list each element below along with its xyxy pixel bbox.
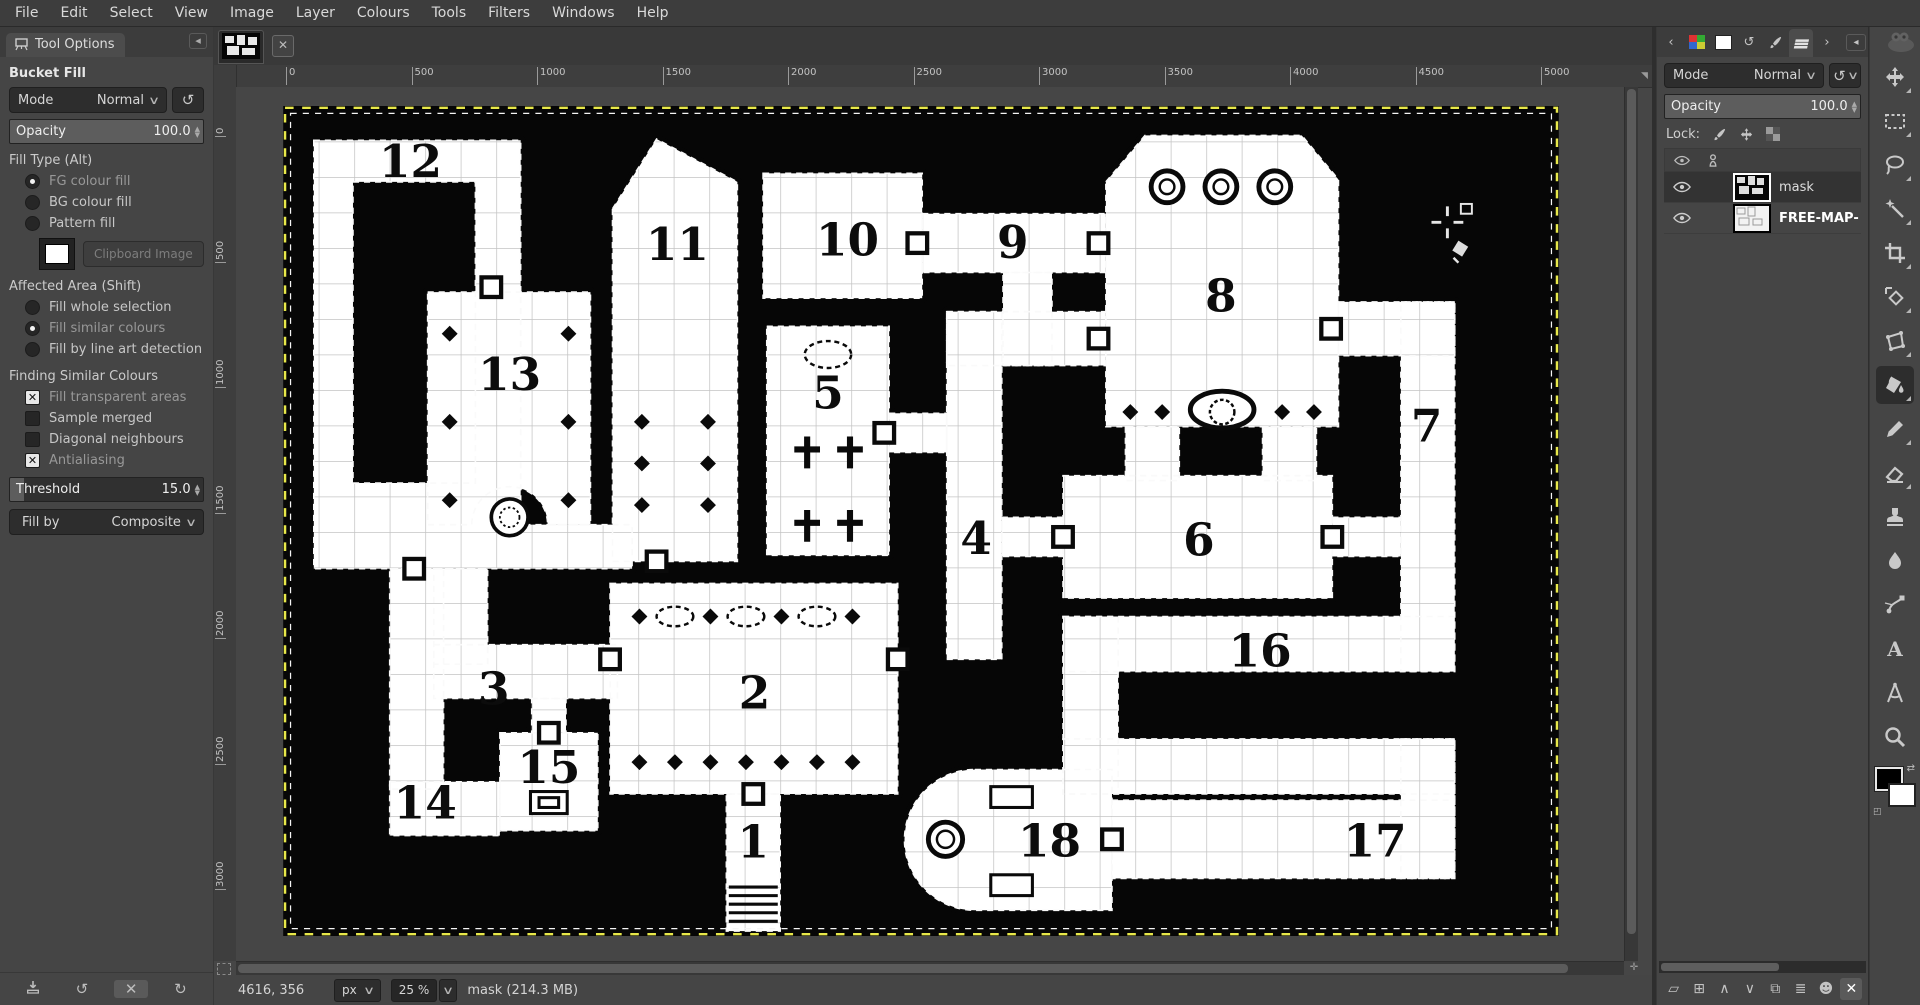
fg-colour-swatch[interactable] [39, 238, 75, 270]
menu-select[interactable]: Select [99, 1, 164, 25]
affected-area-label: Affected Area (Shift) [9, 279, 204, 294]
room-number-17: 17 [1344, 813, 1407, 867]
option-label: Diagonal neighbours [49, 432, 184, 447]
tab-tool-options[interactable]: Tool Options [6, 33, 125, 57]
menu-file[interactable]: File [4, 1, 49, 25]
checkbox-sample-merged[interactable]: Sample merged [9, 408, 204, 429]
option-label: BG colour fill [49, 195, 132, 210]
chevron-down-icon: ∨ [363, 984, 375, 997]
lock-paint-icon[interactable] [1712, 127, 1727, 142]
tab-configure-icon[interactable]: ◂ [189, 33, 207, 49]
room-number-13: 13 [478, 347, 541, 401]
layer-action-buttons: ▱⊞∧∨⧉≣☻✕ [1657, 973, 1868, 1005]
layer-mode-label: Mode [1673, 68, 1708, 83]
room-number-10: 10 [816, 212, 879, 266]
duplicate-layer-button[interactable]: ⧉ [1764, 978, 1786, 1000]
ruler-tick: 2000 [788, 67, 816, 85]
new-group-button[interactable]: ⊞ [1688, 978, 1710, 1000]
back-arrow-icon[interactable]: ‹ [1659, 30, 1683, 54]
menubar: FileEditSelectViewImageLayerColoursTools… [0, 0, 1920, 27]
visibility-column-icon [1674, 155, 1690, 166]
option-label: Antialiasing [49, 453, 125, 468]
layers-scrollbar[interactable] [1659, 961, 1866, 973]
option-label: Fill transparent areas [49, 390, 186, 405]
layers-panel-body: Mode Normal ∨ ↺ ∨ Opacity 100.0 ▲▼ Lock:… [1657, 57, 1868, 234]
option-label: Sample merged [49, 411, 152, 426]
chevron-down-icon: ∨ [185, 516, 197, 529]
lock-alpha-icon[interactable] [1766, 127, 1781, 142]
ruler-tick: 2500 [914, 67, 942, 85]
ruler-tick: 3500 [1165, 67, 1193, 85]
room-number-1: 1 [738, 815, 770, 869]
fuzzy-select-tool[interactable] [1876, 190, 1914, 228]
room-number-15: 15 [517, 740, 580, 794]
opacity-slider[interactable]: Opacity 100.0 ▲▼ [9, 119, 204, 144]
visibility-eye-icon[interactable] [1673, 181, 1691, 193]
pointer-position: 4616, 356 [238, 983, 324, 998]
ruler-corner [214, 65, 237, 87]
new-layer-button[interactable]: ▱ [1663, 978, 1685, 1000]
lock-position-icon[interactable] [1739, 127, 1754, 142]
ruler-tick: 5000 [1541, 67, 1569, 85]
radio-indicator[interactable] [25, 321, 40, 336]
mode-label: Mode [18, 93, 53, 108]
ruler-tick: 0 [286, 67, 295, 85]
unit-select[interactable]: px ∨ [334, 979, 381, 1002]
mode-reset-button[interactable]: ↺ [172, 87, 204, 113]
top-ruler[interactable]: 0500100015002000250030003500400045005000 [214, 65, 1652, 88]
room-number-16: 16 [1229, 624, 1292, 678]
tab-tool-options-label: Tool Options [35, 37, 115, 52]
smudge-icon [1883, 549, 1907, 573]
tool-options-body: Bucket Fill Mode Normal ∨ ↺ Opacity 100.… [0, 57, 213, 972]
threshold-value: 15.0 [162, 482, 195, 497]
chevron-down-icon: ∨ [442, 984, 454, 997]
handle-transform-tool[interactable] [1876, 322, 1914, 360]
radio-indicator[interactable] [25, 174, 40, 189]
layers-dock-tabstrip: ‹ ↺ › ◂ [1657, 27, 1868, 57]
fuzzy-select-icon [1883, 197, 1907, 221]
lock-label: Lock: [1666, 127, 1700, 142]
option-label: Pattern fill [49, 216, 115, 231]
link-column-icon [1708, 154, 1718, 167]
layers-icon[interactable] [1789, 29, 1813, 57]
save-icon [25, 979, 41, 995]
left-ruler[interactable]: 050010001500200025003000 [214, 87, 237, 961]
checkbox-antialiasing[interactable]: ✕Antialiasing [9, 450, 204, 471]
layer-thumbnail[interactable] [1733, 173, 1771, 202]
move-icon [1883, 65, 1907, 89]
option-label: Fill whole selection [49, 300, 172, 315]
move-tool[interactable] [1876, 58, 1914, 96]
menu-help[interactable]: Help [626, 1, 680, 25]
zoom-select[interactable]: ∨ [439, 979, 457, 1002]
layer-opacity-spinner[interactable]: ▲▼ [1852, 101, 1860, 113]
checkbox-fill-transparent-areas[interactable]: ✕Fill transparent areas [9, 387, 204, 408]
room-number-6: 6 [1183, 512, 1215, 566]
zoom-tool[interactable] [1876, 718, 1914, 756]
fill-type-label: Fill Type (Alt) [9, 153, 204, 168]
radio-indicator[interactable] [25, 195, 40, 210]
menu-layer[interactable]: Layer [285, 1, 346, 25]
fill-by-select[interactable]: Fill by Composite ∨ [9, 509, 204, 535]
close-image-icon[interactable]: ✕ [272, 35, 294, 57]
text-icon: A [1883, 637, 1907, 661]
quick-mask-toggle[interactable] [217, 963, 231, 975]
check-indicator[interactable] [25, 432, 40, 447]
fill-type-options: FG colour fillBG colour fillPattern fill [9, 171, 204, 234]
crop-icon [1883, 241, 1907, 265]
clone-icon [1883, 505, 1907, 529]
canvas-area: ✕ 05001000150020002500300035004000450050… [214, 27, 1652, 1005]
option-label: Fill similar colours [49, 321, 165, 336]
menu-windows[interactable]: Windows [541, 1, 626, 25]
free-select-tool[interactable] [1876, 146, 1914, 184]
tool-options-footer: ↺ ✕ ↻ [0, 972, 213, 1005]
fill-by-label: Fill by [18, 515, 59, 530]
checkbox-diagonal-neighbours[interactable]: Diagonal neighbours [9, 429, 204, 450]
image-tab-thumbnail[interactable] [218, 30, 264, 64]
ruler-tick: 1500 [215, 485, 226, 513]
vertical-scrollbar[interactable] [1624, 87, 1638, 961]
bg-swatch-icon[interactable] [1711, 30, 1735, 54]
room-number-3: 3 [478, 662, 510, 716]
layer-name[interactable]: FREE-MAP- [1779, 211, 1859, 226]
default-colours-icon[interactable]: ◰ [1873, 807, 1882, 817]
text-tool[interactable]: A [1876, 630, 1914, 668]
room-number-11: 11 [646, 217, 709, 271]
room-number-5: 5 [812, 365, 844, 419]
room-number-4: 4 [960, 511, 992, 565]
delete-layer-button[interactable]: ✕ [1840, 978, 1862, 1000]
menu-filters[interactable]: Filters [477, 1, 541, 25]
radio-fg-colour-fill[interactable]: FG colour fill [9, 171, 204, 192]
layer-row-free-map-[interactable]: FREE-MAP- [1664, 203, 1861, 234]
ruler-tick: 1000 [537, 67, 565, 85]
ruler-tick: 1000 [215, 360, 226, 388]
dungeon-map-image: 121311109875461632151411817 [283, 106, 1559, 936]
menu-edit[interactable]: Edit [49, 1, 98, 25]
mode-select[interactable]: Mode Normal ∨ [9, 87, 167, 113]
crop-tool[interactable] [1876, 234, 1914, 272]
radio-pattern-fill[interactable]: Pattern fill [9, 213, 204, 234]
undo-history-icon[interactable]: ↺ [1737, 30, 1761, 54]
layer-list-header [1664, 148, 1861, 172]
handle-transform-icon [1883, 329, 1907, 353]
paths-tool[interactable] [1876, 586, 1914, 624]
layer-opacity-value: 100.0 [1810, 99, 1851, 114]
palette-icon[interactable] [1685, 30, 1709, 54]
swap-colours-icon[interactable]: ⇄ [1907, 763, 1915, 774]
radio-bg-colour-fill[interactable]: BG colour fill [9, 192, 204, 213]
save-options-button[interactable] [16, 979, 50, 999]
check-indicator[interactable]: ✕ [25, 453, 40, 468]
smudge-tool[interactable] [1876, 542, 1914, 580]
radio-indicator[interactable] [25, 216, 40, 231]
measure-icon [1883, 681, 1907, 705]
clipboard-image-button[interactable]: Clipboard Image [83, 241, 204, 267]
brush-icon[interactable] [1763, 30, 1787, 54]
image-tabstrip: ✕ [214, 27, 1652, 66]
ruler-tick: 500 [412, 67, 434, 85]
radio-fill-whole-selection[interactable]: Fill whole selection [9, 297, 204, 318]
merge-layer-button[interactable]: ≣ [1790, 978, 1812, 1000]
layers-dock: ‹ ↺ › ◂ Mode Normal ∨ ↺ ∨ Opacity [1656, 27, 1868, 1005]
transform-icon [1883, 285, 1907, 309]
threshold-spinner[interactable]: ▲▼ [195, 484, 203, 496]
ruler-tick: 2000 [215, 611, 226, 639]
room-number-2: 2 [739, 665, 771, 719]
bucket-fill-icon [1883, 373, 1907, 397]
layer-name[interactable]: mask [1779, 180, 1814, 195]
navigation-icon[interactable]: ✛ [1628, 963, 1640, 973]
eraser-icon [1883, 461, 1907, 485]
radio-indicator[interactable] [25, 300, 40, 315]
tool-title: Bucket Fill [9, 66, 204, 81]
ruler-tick: 3000 [215, 862, 226, 890]
zoom-icon [1883, 725, 1907, 749]
mode-value: Normal [97, 93, 144, 108]
clone-tool[interactable] [1876, 498, 1914, 536]
option-label: FG colour fill [49, 174, 130, 189]
threshold-label: Threshold [10, 482, 162, 497]
layer-row-mask[interactable]: mask [1664, 172, 1861, 203]
room-number-9: 9 [997, 215, 1029, 269]
pencil-icon [1883, 417, 1907, 441]
raise-layer-button[interactable]: ∧ [1713, 978, 1735, 1000]
radio-fill-by-line-art-detection[interactable]: Fill by line art detection [9, 339, 204, 360]
radio-indicator[interactable] [25, 342, 40, 357]
room-number-8: 8 [1205, 269, 1237, 323]
pencil-tool[interactable] [1876, 410, 1914, 448]
check-indicator[interactable]: ✕ [25, 390, 40, 405]
layer-list: maskFREE-MAP- [1664, 172, 1861, 234]
tool-options-dock: Tool Options ◂ Bucket Fill Mode Normal ∨… [0, 27, 214, 1005]
delete-options-button[interactable]: ✕ [114, 980, 148, 998]
free-select-icon [1883, 153, 1907, 177]
easel-icon [14, 38, 29, 51]
tool-options-tabstrip: Tool Options ◂ [0, 27, 213, 57]
opacity-spinner[interactable]: ▲▼ [195, 126, 203, 138]
room-number-7: 7 [1411, 398, 1443, 452]
tab-menu-icon[interactable]: ◂ [1846, 34, 1866, 51]
map-thumbnail-icon [222, 33, 260, 59]
rect-select-tool[interactable] [1876, 102, 1914, 140]
measure-tool[interactable] [1876, 674, 1914, 712]
layer-opacity-slider[interactable]: Opacity 100.0 ▲▼ [1664, 94, 1861, 119]
background-colour-swatch[interactable] [1888, 783, 1916, 807]
image-title: mask (214.3 MB) [467, 983, 578, 998]
ruler-tick: 4000 [1290, 67, 1318, 85]
ruler-tick: 3000 [1039, 67, 1067, 85]
ruler-tick: 1500 [663, 67, 691, 85]
option-label: Fill by line art detection [49, 342, 202, 357]
finding-similar-options: ✕Fill transparent areasSample mergedDiag… [9, 387, 204, 471]
room-number-12: 12 [379, 134, 442, 188]
eraser-tool[interactable] [1876, 454, 1914, 492]
room-number-14: 14 [394, 775, 457, 829]
layer-mode-select[interactable]: Mode Normal ∨ [1664, 63, 1824, 88]
transform-tool[interactable] [1876, 278, 1914, 316]
paths-icon [1883, 593, 1907, 617]
add-mask-button[interactable]: ☻ [1815, 978, 1837, 1000]
zoom-fit-icon[interactable]: ◥ [1637, 65, 1652, 87]
layer-mode-value: Normal [1754, 68, 1801, 83]
ruler-tick: 0 [215, 128, 226, 137]
chevron-down-icon: ∨ [1805, 69, 1817, 82]
colour-swatches: ⇄ ◰ [1875, 767, 1915, 809]
svg-text:A: A [1886, 637, 1903, 661]
menu-view[interactable]: View [164, 1, 219, 25]
chevron-down-icon: ∨ [148, 94, 160, 107]
toolbox: A ⇄ ◰ [1869, 27, 1920, 1005]
affected-area-options: Fill whole selectionFill similar colours… [9, 297, 204, 360]
forward-arrow-icon[interactable]: › [1815, 30, 1839, 54]
finding-similar-label: Finding Similar Colours [9, 369, 204, 384]
fill-by-value: Composite [112, 515, 181, 530]
gimp-wilber-icon [1886, 30, 1916, 52]
lower-layer-button[interactable]: ∨ [1739, 978, 1761, 1000]
ruler-tick: 500 [215, 240, 226, 262]
zoom-value: 25 % [399, 983, 430, 997]
radio-fill-similar-colours[interactable]: Fill similar colours [9, 318, 204, 339]
check-indicator[interactable] [25, 411, 40, 426]
menu-tools[interactable]: Tools [421, 1, 478, 25]
layer-thumbnail[interactable] [1733, 204, 1771, 233]
reset-options-button[interactable]: ↻ [163, 980, 197, 998]
layer-opacity-label: Opacity [1665, 99, 1810, 114]
horizontal-scrollbar[interactable] [236, 961, 1624, 975]
menu-image[interactable]: Image [219, 1, 285, 25]
room-number-18: 18 [1018, 813, 1081, 867]
bucket-fill-tool[interactable] [1876, 366, 1914, 404]
ruler-tick: 2500 [215, 736, 226, 764]
opacity-label: Opacity [10, 124, 153, 139]
unit-value: px [342, 983, 357, 997]
restore-options-button[interactable]: ↺ [65, 980, 99, 998]
layer-mode-reset-button[interactable]: ↺ ∨ [1829, 63, 1861, 88]
threshold-slider[interactable]: Threshold 15.0 ▲▼ [9, 477, 204, 502]
image-viewport[interactable]: 121311109875461632151411817 [236, 87, 1624, 961]
zoom-input[interactable]: 25 % [391, 979, 438, 1002]
menu-colours[interactable]: Colours [346, 1, 421, 25]
ruler-tick: 4500 [1416, 67, 1444, 85]
rect-select-icon [1883, 109, 1907, 133]
statusbar: 4616, 356 px ∨ 25 % ∨ mask (214.3 MB) [214, 975, 1652, 1005]
visibility-eye-icon[interactable] [1673, 212, 1691, 224]
opacity-value: 100.0 [153, 124, 194, 139]
